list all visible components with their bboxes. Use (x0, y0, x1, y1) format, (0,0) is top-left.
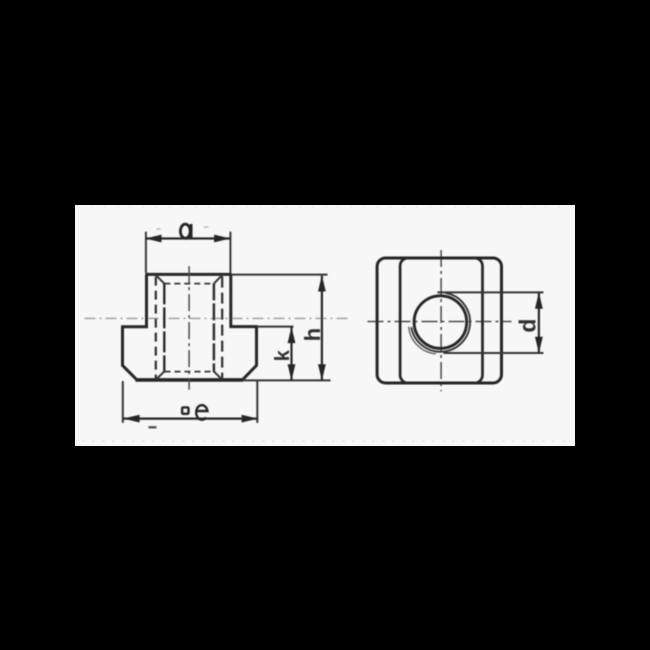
svg-text:d: d (514, 319, 540, 333)
svg-text:k: k (272, 350, 294, 362)
svg-text:h: h (299, 328, 324, 341)
